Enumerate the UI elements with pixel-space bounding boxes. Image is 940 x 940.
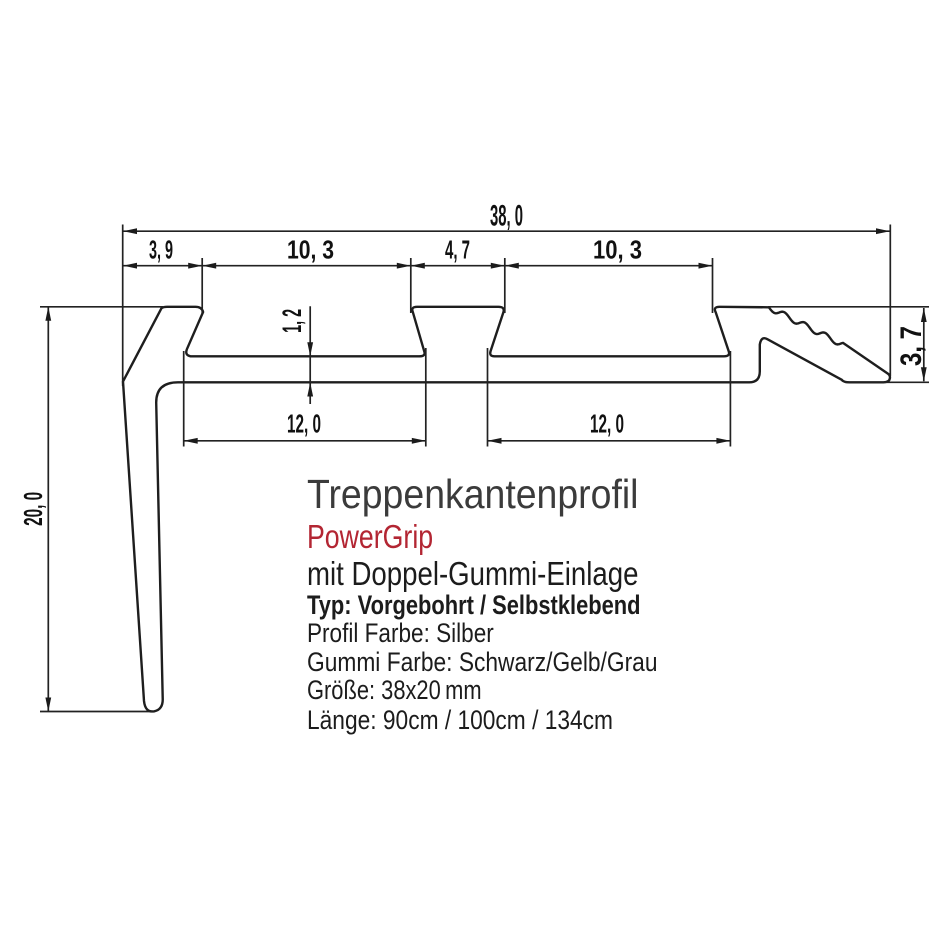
svg-text:38, 0: 38, 0 <box>490 200 523 233</box>
svg-text:3, 7: 3, 7 <box>895 326 928 366</box>
svg-text:12, 0: 12, 0 <box>287 409 321 439</box>
svg-text:12, 0: 12, 0 <box>590 409 624 439</box>
svg-text:10, 3: 10, 3 <box>287 235 334 265</box>
svg-text:4, 7: 4, 7 <box>445 235 470 265</box>
svg-text:1, 2: 1, 2 <box>277 309 307 333</box>
svg-text:20, 0: 20, 0 <box>18 492 48 526</box>
svg-text:10, 3: 10, 3 <box>593 235 642 265</box>
svg-text:3, 9: 3, 9 <box>149 235 173 265</box>
